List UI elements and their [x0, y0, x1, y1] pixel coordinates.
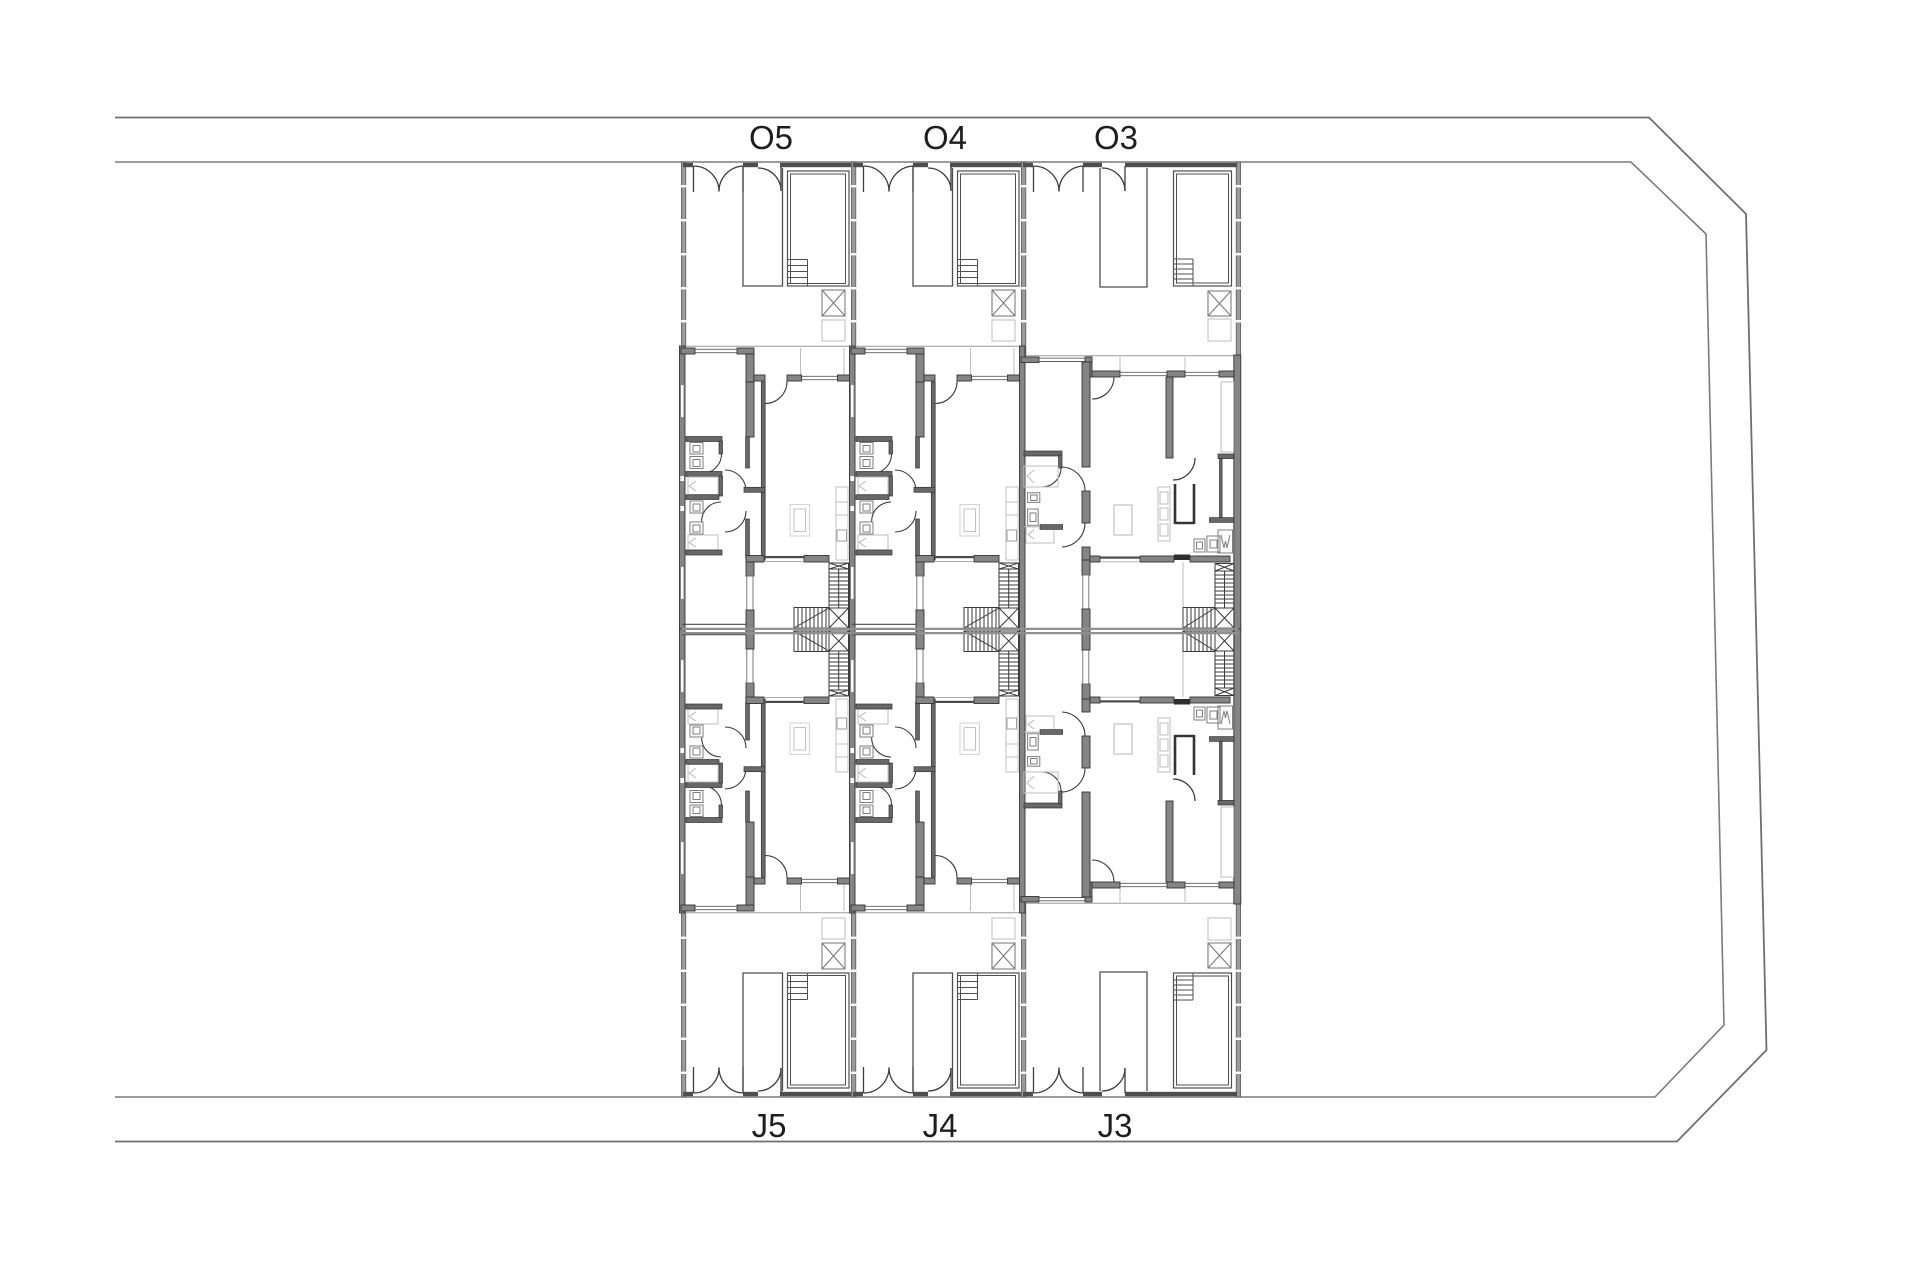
svg-text:O5: O5 [749, 119, 793, 156]
svg-text:O4: O4 [923, 119, 967, 156]
svg-text:O3: O3 [1094, 119, 1138, 156]
svg-text:J3: J3 [1098, 1107, 1133, 1144]
svg-text:J4: J4 [923, 1107, 958, 1144]
svg-text:J5: J5 [752, 1107, 787, 1144]
